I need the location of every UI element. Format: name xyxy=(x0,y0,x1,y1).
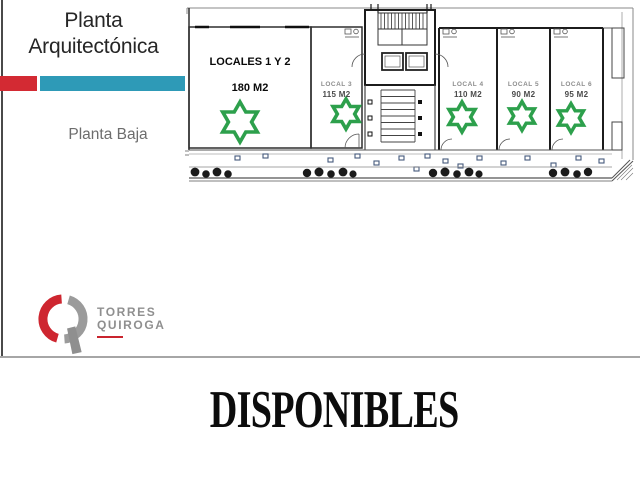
locale-label-6-area: 95 M2 xyxy=(550,91,603,100)
floor-plan: LOCALES 1 Y 2 180 M2 LOCAL 3 115 M2 LOCA… xyxy=(185,4,637,186)
locale-label-5-name: LOCAL 5 xyxy=(497,81,550,88)
accent-bar-red xyxy=(0,76,37,91)
locale-label-3-area: 115 M2 xyxy=(311,91,362,100)
logo-name-line1: TORRES xyxy=(97,306,166,319)
locale-label-1-2-name: LOCALES 1 Y 2 xyxy=(189,56,311,68)
locale-label-4-area: 110 M2 xyxy=(439,91,497,100)
logo-name-line2: QUIROGA xyxy=(97,319,166,332)
locale-label-5-area: 90 M2 xyxy=(497,91,550,100)
locale-label-6-name: LOCAL 6 xyxy=(550,81,603,88)
page-title: Planta Arquitectónica xyxy=(2,8,185,59)
divider-line xyxy=(0,356,640,358)
available-star-icon xyxy=(333,99,359,129)
available-star-icon xyxy=(449,102,475,132)
tree-row xyxy=(191,168,593,178)
available-star-icon xyxy=(510,102,535,131)
slide: Planta Arquitectónica Planta Baja xyxy=(0,0,640,480)
logo-q-icon xyxy=(38,292,90,356)
available-star-icon xyxy=(559,104,584,133)
available-star-icon xyxy=(223,102,258,142)
locale-label-1-2-area: 180 M2 xyxy=(189,82,311,94)
logo-underline xyxy=(97,336,123,339)
company-logo: TORRES QUIROGA xyxy=(38,292,166,356)
locale-label-4-name: LOCAL 4 xyxy=(439,81,497,88)
availability-banner-text: DISPONIBLES xyxy=(210,381,459,439)
accent-bar-teal xyxy=(40,76,185,91)
floor-subtitle: Planta Baja xyxy=(30,126,186,144)
availability-banner: DISPONIBLES xyxy=(0,381,640,439)
locale-label-3-name: LOCAL 3 xyxy=(311,81,362,88)
